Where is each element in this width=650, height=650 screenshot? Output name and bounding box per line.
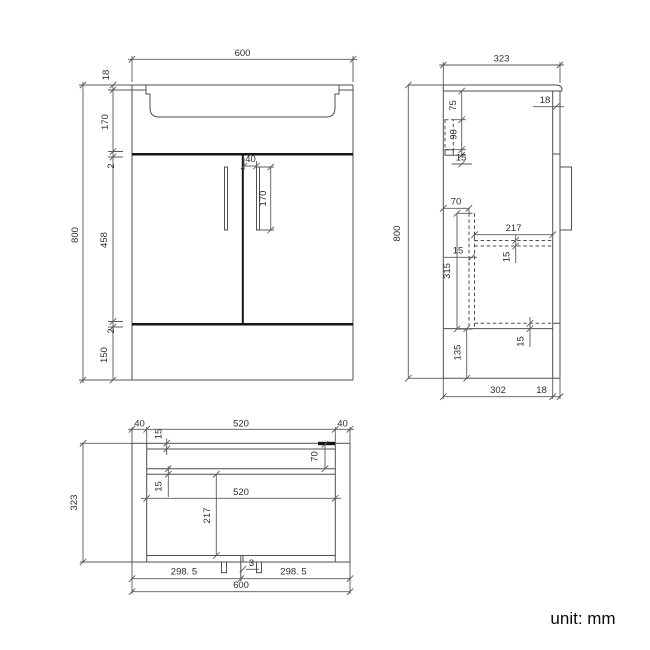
vanity-technical-drawing: 600 800 18 170 2 458 2 150 40 170 <box>0 0 650 650</box>
side-dim-back-rail-depth: 70 <box>451 197 462 208</box>
front-dim-overall-height: 800 <box>70 227 81 243</box>
front-dim-handle-offset: 40 <box>245 154 256 165</box>
plan-dim-right-door-width: 298. 5 <box>280 567 306 578</box>
plan-dim-inner-depth: 217 <box>202 508 213 524</box>
side-view: 323 18 75 90 15 70 217 15 15 315 135 15 … <box>392 54 572 400</box>
plan-dim-side-panel-left: 40 <box>134 419 145 430</box>
side-dim-worktop-thickness: 18 <box>540 95 551 106</box>
plan-dim-side-panel-right: 40 <box>337 419 348 430</box>
front-dim-overall-width: 600 <box>235 48 251 59</box>
side-dim-bracket-height: 90 <box>449 129 460 140</box>
plan-dim-left-door-width: 298. 5 <box>171 567 197 578</box>
plan-left-handle <box>222 562 227 573</box>
front-view: 600 800 18 170 2 458 2 150 40 170 <box>70 48 357 383</box>
plan-view-outline <box>132 443 350 581</box>
side-dim-overall-height: 800 <box>392 226 403 242</box>
side-dimension-lines <box>405 62 564 400</box>
plan-dim-door-gap: 3 <box>249 558 254 569</box>
plan-dim-top-inner-width: 520 <box>233 419 249 430</box>
plan-dim-overall-width: 600 <box>233 580 249 591</box>
side-dim-internal-depth: 302 <box>490 385 506 396</box>
plan-dim-rail-thickness: 15 <box>154 481 165 492</box>
side-dim-bracket-offset: 75 <box>448 100 459 111</box>
front-left-handle <box>225 167 228 230</box>
side-dimension-labels: 323 18 75 90 15 70 217 15 15 315 135 15 … <box>392 54 550 397</box>
plan-view: 40 520 40 15 323 70 15 520 217 3 298. 5 … <box>69 419 354 595</box>
front-dim-gap-top: 2 <box>106 163 117 168</box>
side-dim-divider-thickness: 15 <box>453 246 464 257</box>
front-plinth-joint <box>132 323 353 326</box>
plan-dimension-labels: 40 520 40 15 323 70 15 520 217 3 298. 5 … <box>69 419 348 592</box>
side-dim-bottom-panel-thickness: 15 <box>516 336 527 347</box>
front-dim-door-height: 458 <box>99 232 110 248</box>
front-dim-plinth-height: 150 <box>99 347 110 363</box>
side-view-hidden-lines <box>445 120 553 329</box>
unit-note: unit: mm <box>550 609 615 628</box>
side-dim-bracket-base: 15 <box>456 153 467 164</box>
side-dim-overall-depth: 323 <box>494 54 510 65</box>
plan-dim-back-panel-thickness: 15 <box>154 429 165 440</box>
side-dim-shelf-thickness: 15 <box>502 252 513 263</box>
plan-dim-overall-depth: 323 <box>69 495 80 511</box>
front-worktop-joint <box>132 153 353 156</box>
side-dim-bottom-clearance: 135 <box>453 345 464 361</box>
side-internal-divider <box>469 213 475 329</box>
side-internal-shelf <box>475 241 553 247</box>
front-dimension-labels: 600 800 18 170 2 458 2 150 40 170 <box>70 48 269 363</box>
front-dimension-lines <box>79 56 357 383</box>
side-dim-shelf-depth: 217 <box>506 223 522 234</box>
plan-dim-inner-width: 520 <box>233 487 249 498</box>
side-dim-door-thickness: 18 <box>536 385 547 396</box>
plan-dim-back-rail-depth: 70 <box>310 451 321 462</box>
front-dim-gap-bottom: 2 <box>106 328 117 333</box>
front-dim-worktop-height: 18 <box>101 70 112 81</box>
side-dim-divider-height: 315 <box>442 263 453 279</box>
front-dim-basin-depth: 170 <box>100 114 111 130</box>
plan-right-handle <box>257 562 262 573</box>
front-dim-handle-length: 170 <box>258 191 269 207</box>
front-door-divider <box>242 156 244 324</box>
